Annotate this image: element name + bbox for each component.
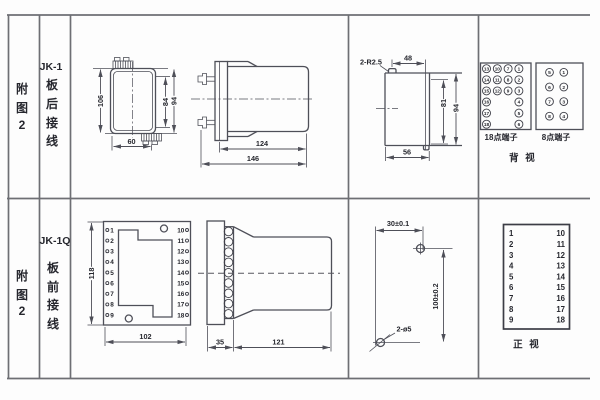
terminal-number: 5: [509, 272, 514, 281]
terminal-number: 10: [495, 66, 501, 71]
wiring-label-char: 板: [46, 77, 59, 92]
wiring-label-char: 后: [46, 96, 58, 111]
fixing-bolt-top: [198, 74, 215, 85]
keying-slot-top: [389, 69, 397, 73]
terminal-number: 9: [110, 312, 114, 319]
terminal-number: 4: [562, 114, 565, 120]
mounting-flange: [215, 62, 228, 141]
front-terminal-table: 1 2 3 4 5 6 7 8 9 10 11 12 13 14 15 16 1…: [504, 225, 570, 351]
terminal-number: 3: [518, 89, 521, 94]
screw-terminal-block-bottom: [142, 134, 162, 145]
dim-cutout-outer-height: 94: [452, 103, 461, 112]
terminal-number: 9: [507, 89, 510, 94]
fig-label-char: 附: [16, 81, 28, 96]
terminal-number: 17: [177, 302, 185, 309]
front-right-terminals: 10 11 12 13 14 15 16 17 18: [177, 227, 188, 319]
fixing-bolt-bottom: [198, 117, 215, 128]
dim-hole-v-spacing: 100±0.2: [431, 283, 440, 309]
terminal-number: 8: [507, 78, 510, 83]
terminal-number: 5: [548, 70, 551, 76]
side-view-rear-wiring-drawing: 124 146: [191, 62, 313, 168]
terminal-number: 8: [509, 305, 514, 314]
dim-front-width: 102: [139, 332, 151, 341]
drill-plan-drawing: 30±0.1 100±0.2 2-ø5: [370, 219, 453, 352]
terminal-number: 4: [518, 100, 521, 105]
terminal-number: 12: [556, 251, 565, 260]
wiring-label-char: 接: [46, 115, 58, 130]
dim-front-height: 118: [87, 268, 96, 280]
mounting-hole: [161, 225, 168, 232]
terminal-number: 14: [556, 272, 565, 281]
terminal-number: 6: [509, 283, 514, 292]
side-view-front-wiring-drawing: 35 121: [198, 221, 340, 352]
fig-label-char: 图: [16, 288, 28, 302]
terminal-number: 3: [110, 249, 114, 256]
row-label-bottom: 附 图 2 JK-1Q 板 前 接 线: [16, 235, 70, 331]
wiring-label-char: 接: [47, 297, 59, 312]
technical-drawing-canvas: 附 图 2 JK-1 板 后 接 线 附 图 2 JK-1Q 板 前 接 线 1…: [0, 0, 600, 400]
terminal-number: 15: [556, 283, 565, 292]
terminal-number: 18: [556, 316, 565, 325]
dim-cutout-inner-height: 81: [439, 99, 448, 107]
terminal-number: 13: [484, 66, 490, 71]
terminal-number: 5: [110, 270, 114, 277]
terminal-number: 1: [110, 227, 114, 234]
terminal-number: 18: [177, 312, 185, 319]
dim-width: 60: [127, 137, 135, 146]
terminal-number: 16: [556, 294, 565, 303]
terminal-number: 13: [556, 262, 565, 271]
terminal-number: 10: [556, 229, 565, 238]
front-mounting-plate: [207, 221, 225, 325]
dim-outer-height: 94: [170, 96, 179, 105]
terminal-number: 16: [177, 291, 185, 298]
radius-note: 2-R2.5: [360, 58, 382, 67]
rear-terminal-views: 13 14 15 16 17 18 10 11 12 7 8 9 1 2 3 4…: [481, 63, 584, 164]
terminal-number: 11: [178, 238, 185, 245]
dim-cutout-width: 56: [403, 148, 411, 157]
model-label: JK-1Q: [40, 235, 71, 247]
back-view-drawing: 106 84 94 60: [93, 58, 179, 151]
terminal-number: 17: [484, 111, 490, 116]
relay-mounting-drawing-page: 附 图 2 JK-1 板 后 接 线 附 图 2 JK-1Q 板 前 接 线 1…: [0, 0, 600, 400]
terminal-number: 17: [556, 305, 565, 314]
terminal-number: 12: [495, 89, 501, 94]
terminal-number: 16: [484, 100, 490, 105]
terminal-8pt-label: 8点端子: [542, 132, 570, 142]
dim-total-length: 146: [247, 154, 259, 163]
wiring-label-char: 线: [46, 133, 58, 148]
terminal-number: 3: [509, 251, 514, 260]
terminal-number: 2: [562, 85, 565, 91]
screw-terminal-block-top: [113, 58, 133, 69]
front-view-label: 正 视: [513, 339, 541, 351]
panel-cutout-drawing: 2-R2.5 48 81 94 56: [360, 54, 462, 162]
terminal-number: 2: [509, 240, 514, 249]
dim-height: 106: [96, 95, 105, 107]
terminal-number: 4: [509, 262, 514, 271]
terminal-number: 7: [509, 294, 513, 303]
terminal-18pt-numbers: 13 14 15 16 17 18 10 11 12 7 8 9 1 2 3 4…: [483, 65, 523, 129]
terminal-number: 7: [548, 99, 551, 105]
terminal-number: 6: [110, 280, 114, 287]
keying-slot-bottom: [424, 146, 430, 150]
terminal-screws-column: [224, 227, 233, 318]
relay-case-outline: [111, 69, 156, 134]
fig-label-char: 图: [16, 101, 28, 115]
terminal-number: 10: [177, 227, 185, 234]
terminal-block-18pt: [481, 63, 532, 130]
terminal-8pt-numbers: 5 6 7 8 1 2 3 4: [546, 68, 568, 120]
fig-label-char: 2: [19, 118, 26, 132]
terminal-number: 8: [548, 114, 551, 120]
window-cutout: [119, 230, 173, 317]
terminal-number: 2: [518, 78, 521, 83]
wiring-label-char: 前: [47, 279, 59, 294]
hole-diameter-note: 2-ø5: [396, 325, 411, 334]
terminal-number: 1: [562, 70, 565, 76]
terminal-block-8pt: [536, 63, 583, 130]
wiring-label-char: 线: [47, 316, 59, 331]
terminal-number: 6: [518, 122, 521, 127]
terminal-number: 14: [177, 270, 185, 277]
terminal-number: 4: [110, 259, 114, 266]
terminal-number: 8: [110, 302, 114, 309]
dim-body-length: 121: [272, 338, 284, 347]
dim-flange-depth: 35: [216, 338, 224, 347]
wiring-label-char: 板: [47, 260, 60, 275]
terminal-number: 2: [110, 238, 114, 245]
dim-body-length: 124: [256, 139, 269, 148]
terminal-number: 11: [495, 78, 500, 83]
terminal-number: 6: [548, 85, 551, 91]
table-grid: [7, 15, 590, 379]
table-left-numbers: 1 2 3 4 5 6 7 8 9: [509, 229, 514, 324]
terminal-number: 11: [557, 240, 566, 249]
terminal-18pt-label: 18点端子: [485, 132, 518, 142]
model-label: JK-1: [40, 61, 63, 73]
terminal-number: 15: [484, 89, 490, 94]
terminal-number: 14: [484, 78, 490, 83]
terminal-number: 13: [177, 259, 185, 266]
rear-view-label: 背 视: [509, 152, 537, 164]
dim-slot-spacing: 48: [404, 54, 412, 63]
front-left-terminals: 1 2 3 4 5 6 7 8 9: [106, 227, 115, 319]
terminal-number: 7: [110, 291, 114, 298]
dim-hole-h-spacing: 30±0.1: [387, 219, 409, 228]
terminal-number: 1: [518, 66, 521, 71]
table-right-numbers: 10 11 12 13 14 15 16 17 18: [556, 229, 565, 324]
fig-label-char: 附: [16, 268, 28, 283]
mounting-hole: [125, 315, 132, 322]
terminal-number: 3: [562, 99, 565, 105]
fig-label-char: 2: [19, 304, 26, 318]
terminal-number: 15: [177, 280, 185, 287]
terminal-number: 12: [177, 249, 185, 256]
terminal-number: 1: [509, 229, 514, 238]
terminal-number: 18: [484, 122, 490, 127]
terminal-number: 7: [507, 66, 510, 71]
terminal-number: 9: [509, 316, 514, 325]
front-view-drawing: 1 2 3 4 5 6 7 8 9 10 11 12 13 14 15 16 1…: [87, 222, 191, 347]
terminal-number: 5: [518, 111, 521, 116]
